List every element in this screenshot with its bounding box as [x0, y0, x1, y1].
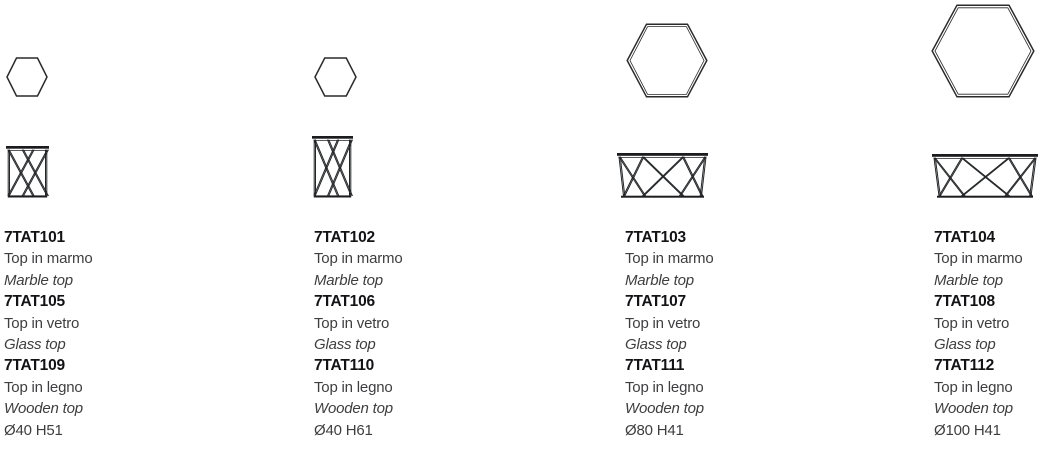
product-column-4: 7TAT104 Top in marmo Marble top 7TAT108 … — [934, 227, 1050, 441]
product-dimensions: Ø100 H41 — [934, 420, 1050, 441]
hexagon-top-view-icon — [931, 4, 1035, 98]
x-frame-front-view-icon — [6, 146, 49, 198]
x-frame-front-view-icon — [932, 154, 1038, 198]
desc-english: Glass top — [4, 334, 154, 355]
product-code: 7TAT107 — [625, 291, 775, 312]
product-code: 7TAT102 — [314, 227, 464, 248]
product-code: 7TAT101 — [4, 227, 154, 248]
desc-italian: Top in vetro — [625, 313, 775, 334]
product-code: 7TAT104 — [934, 227, 1050, 248]
desc-italian: Top in marmo — [934, 248, 1050, 269]
desc-english: Marble top — [4, 270, 154, 291]
product-code: 7TAT111 — [625, 355, 775, 376]
desc-italian: Top in legno — [934, 377, 1050, 398]
hexagon-top-view-icon — [6, 57, 48, 97]
desc-italian: Top in marmo — [4, 248, 154, 269]
desc-english: Glass top — [934, 334, 1050, 355]
desc-english: Wooden top — [4, 398, 154, 419]
desc-italian: Top in vetro — [314, 313, 464, 334]
product-code: 7TAT108 — [934, 291, 1050, 312]
product-code: 7TAT103 — [625, 227, 775, 248]
desc-italian: Top in marmo — [314, 248, 464, 269]
desc-english: Glass top — [314, 334, 464, 355]
x-frame-front-view-icon — [312, 136, 353, 198]
product-column-2: 7TAT102 Top in marmo Marble top 7TAT106 … — [314, 227, 464, 441]
desc-italian: Top in vetro — [4, 313, 154, 334]
desc-english: Marble top — [934, 270, 1050, 291]
catalog-spec-page: 7TAT101 Top in marmo Marble top 7TAT105 … — [0, 0, 1050, 450]
product-column-3: 7TAT103 Top in marmo Marble top 7TAT107 … — [625, 227, 775, 441]
desc-english: Wooden top — [625, 398, 775, 419]
desc-english: Wooden top — [934, 398, 1050, 419]
desc-english: Marble top — [625, 270, 775, 291]
desc-italian: Top in legno — [314, 377, 464, 398]
product-code: 7TAT112 — [934, 355, 1050, 376]
desc-english: Glass top — [625, 334, 775, 355]
desc-italian: Top in legno — [625, 377, 775, 398]
product-code: 7TAT110 — [314, 355, 464, 376]
product-dimensions: Ø80 H41 — [625, 420, 775, 441]
hexagon-top-view-icon — [314, 57, 357, 97]
desc-italian: Top in vetro — [934, 313, 1050, 334]
desc-italian: Top in marmo — [625, 248, 775, 269]
x-frame-front-view-icon — [617, 153, 708, 198]
product-code: 7TAT109 — [4, 355, 154, 376]
product-code: 7TAT106 — [314, 291, 464, 312]
desc-english: Wooden top — [314, 398, 464, 419]
product-code: 7TAT105 — [4, 291, 154, 312]
product-column-1: 7TAT101 Top in marmo Marble top 7TAT105 … — [4, 227, 154, 441]
hexagon-top-view-icon — [626, 23, 708, 98]
desc-english: Marble top — [314, 270, 464, 291]
product-dimensions: Ø40 H61 — [314, 420, 464, 441]
product-dimensions: Ø40 H51 — [4, 420, 154, 441]
desc-italian: Top in legno — [4, 377, 154, 398]
